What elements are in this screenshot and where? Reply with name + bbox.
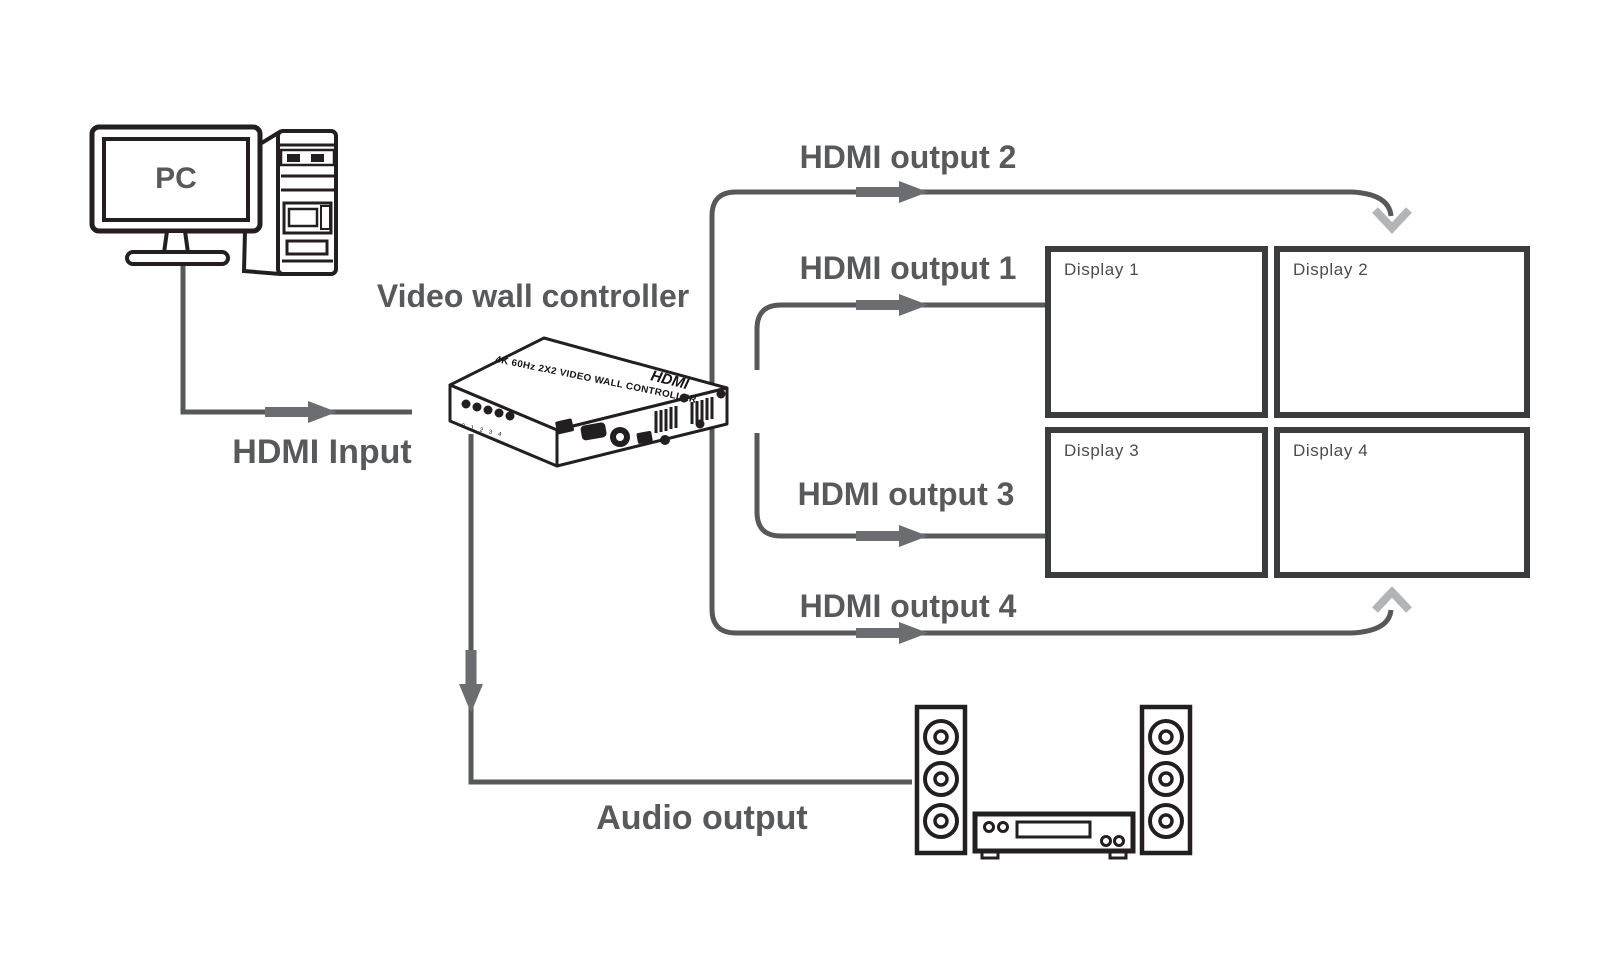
chevron-up-icon [1375,592,1409,610]
hdmi-input-arrow-icon [265,401,337,423]
hdmi-input-label: HDMI Input [232,435,411,469]
display-1-box: Display 1 [1045,246,1268,418]
hdmi-output-4-label: HDMI output 4 [800,590,1017,622]
controller-label: Video wall controller [377,280,689,312]
display-3-box: Display 3 [1045,427,1268,578]
pc-label: PC [155,164,197,194]
audio-system-graphic [917,707,1190,858]
display-3-label: Display 3 [1064,441,1139,460]
pc-monitor-icon [92,127,260,264]
display-2-label: Display 2 [1293,260,1368,279]
amplifier-icon [975,814,1133,858]
output2-arrow-icon [856,181,928,203]
hdmi-output-2-label: HDMI output 2 [800,141,1017,173]
display-4-box: Display 4 [1274,427,1530,578]
pc-graphic [92,127,336,274]
diagram-canvas: 4K 60Hz 2X2 VIDEO WALL CONTROLLER HDMI 0… [0,0,1621,969]
hdmi-output-1-label: HDMI output 1 [800,252,1017,284]
output2-cable [736,192,1391,216]
output4-arrow-icon [856,622,928,644]
display-4-label: Display 4 [1293,441,1368,460]
output3-arrow-icon [856,525,928,547]
display-1-label: Display 1 [1064,260,1139,279]
output1-cable [757,305,1048,370]
output1-arrow-icon [856,294,928,316]
audio-output-label: Audio output [596,801,807,835]
left-speaker-icon [917,707,965,853]
controller-graphic: 4K 60Hz 2X2 VIDEO WALL CONTROLLER HDMI 0… [450,338,727,466]
right-speaker-icon [1142,707,1190,853]
display-2-box: Display 2 [1274,246,1530,418]
audio-down-arrow-icon [459,650,483,713]
hdmi-output-3-label: HDMI output 3 [798,478,1015,510]
